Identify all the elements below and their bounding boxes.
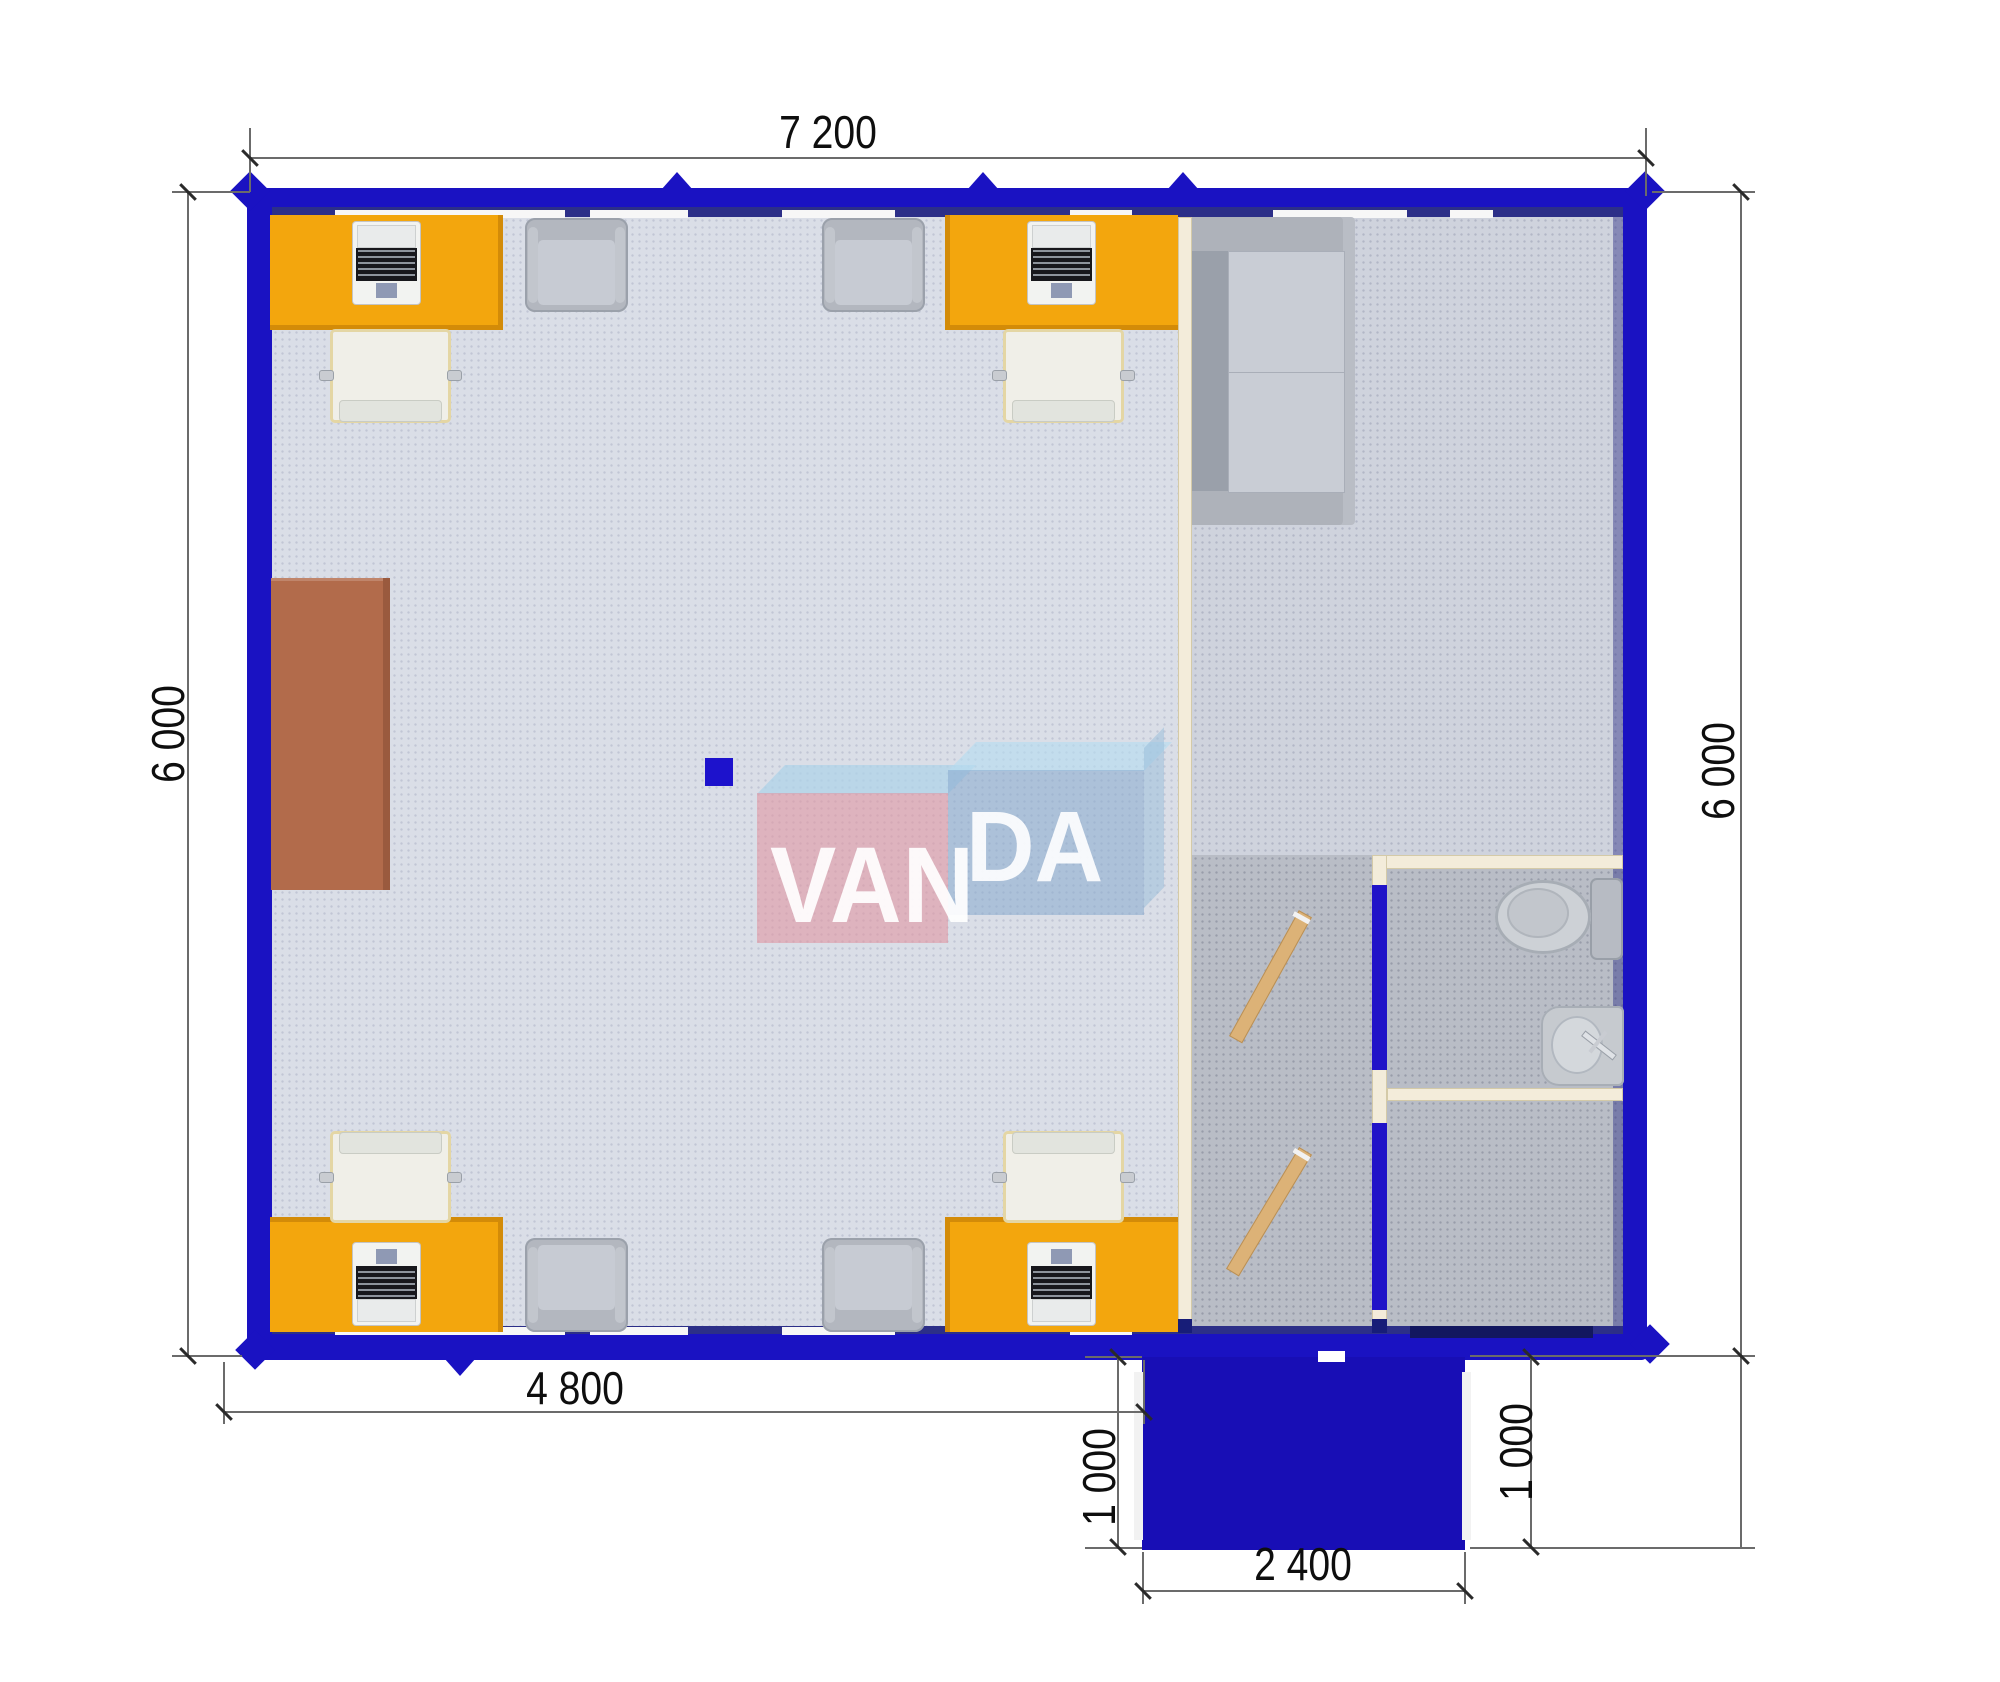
dim-bottom-width: 4 800	[526, 1361, 624, 1415]
extension-line	[1464, 1552, 1466, 1604]
armchair	[525, 1238, 628, 1332]
extension-line	[1142, 1552, 1144, 1604]
dimension-line	[250, 157, 1647, 159]
bathroom-wall-middle	[1387, 1088, 1623, 1101]
extension-line	[172, 1355, 242, 1357]
partition-wall	[1178, 217, 1192, 1333]
extension-line	[172, 191, 250, 193]
laptop-icon	[353, 1243, 420, 1325]
extension-line	[1470, 1547, 1755, 1549]
dimension-line	[223, 1411, 1145, 1413]
panel-joint-marker	[444, 1358, 476, 1376]
armchair	[525, 218, 628, 312]
laptop-icon	[353, 222, 420, 304]
window-icon	[590, 210, 688, 218]
office-chair	[330, 329, 451, 423]
desk-top-right	[945, 215, 1178, 330]
toilet-icon	[1495, 876, 1623, 962]
wall-inner-edge-right	[1613, 217, 1623, 1333]
panel-joint-marker	[1167, 172, 1199, 190]
wall-joint	[1372, 1319, 1387, 1333]
extension-line	[1645, 128, 1647, 196]
door-opening-wc	[1372, 885, 1387, 1070]
extension-line	[1470, 1355, 1755, 1357]
porch-canopy	[1142, 1357, 1465, 1550]
office-chair	[1003, 329, 1124, 423]
door-handle-icon	[1318, 1351, 1345, 1362]
porch-rail	[1134, 1372, 1143, 1540]
floor-plan: VAN DA 7 200 6 000 6 000 4 800 1 000 1 0…	[0, 0, 2000, 1682]
desk-bottom-right	[945, 1217, 1178, 1332]
armchair	[822, 1238, 925, 1332]
sink-icon	[1541, 1006, 1624, 1086]
bathroom-wall-top	[1372, 855, 1623, 869]
floor-box	[705, 758, 733, 786]
door-opening-entry-room	[1372, 1123, 1387, 1310]
sofa	[1192, 217, 1355, 525]
panel-joint-marker	[967, 172, 999, 190]
cabinet	[271, 578, 390, 890]
desk-top-left	[270, 215, 503, 330]
armchair	[822, 218, 925, 312]
dimension-line	[1740, 192, 1742, 1548]
dim-porch-depth-left: 1 000	[1072, 1428, 1126, 1526]
laptop-icon	[1028, 1243, 1095, 1325]
porch-rail	[1462, 1372, 1471, 1540]
dim-porch-width: 2 400	[1254, 1537, 1352, 1591]
window-icon	[782, 210, 895, 218]
office-chair	[330, 1131, 451, 1223]
dim-porch-depth-right: 1 000	[1489, 1403, 1543, 1501]
wall-joint	[1178, 1319, 1192, 1333]
dim-left-height: 6 000	[141, 685, 195, 783]
dim-top-width: 7 200	[779, 105, 877, 159]
building-outline	[247, 188, 1647, 1360]
entrance-door	[1410, 1326, 1593, 1338]
dim-right-height: 6 000	[1691, 722, 1745, 820]
extension-line	[1085, 1356, 1142, 1358]
desk-bottom-left	[270, 1217, 503, 1332]
laptop-icon	[1028, 222, 1095, 304]
panel-joint-marker	[661, 172, 693, 190]
office-chair	[1003, 1131, 1124, 1223]
extension-line	[1085, 1547, 1142, 1549]
window-icon	[1450, 210, 1493, 218]
